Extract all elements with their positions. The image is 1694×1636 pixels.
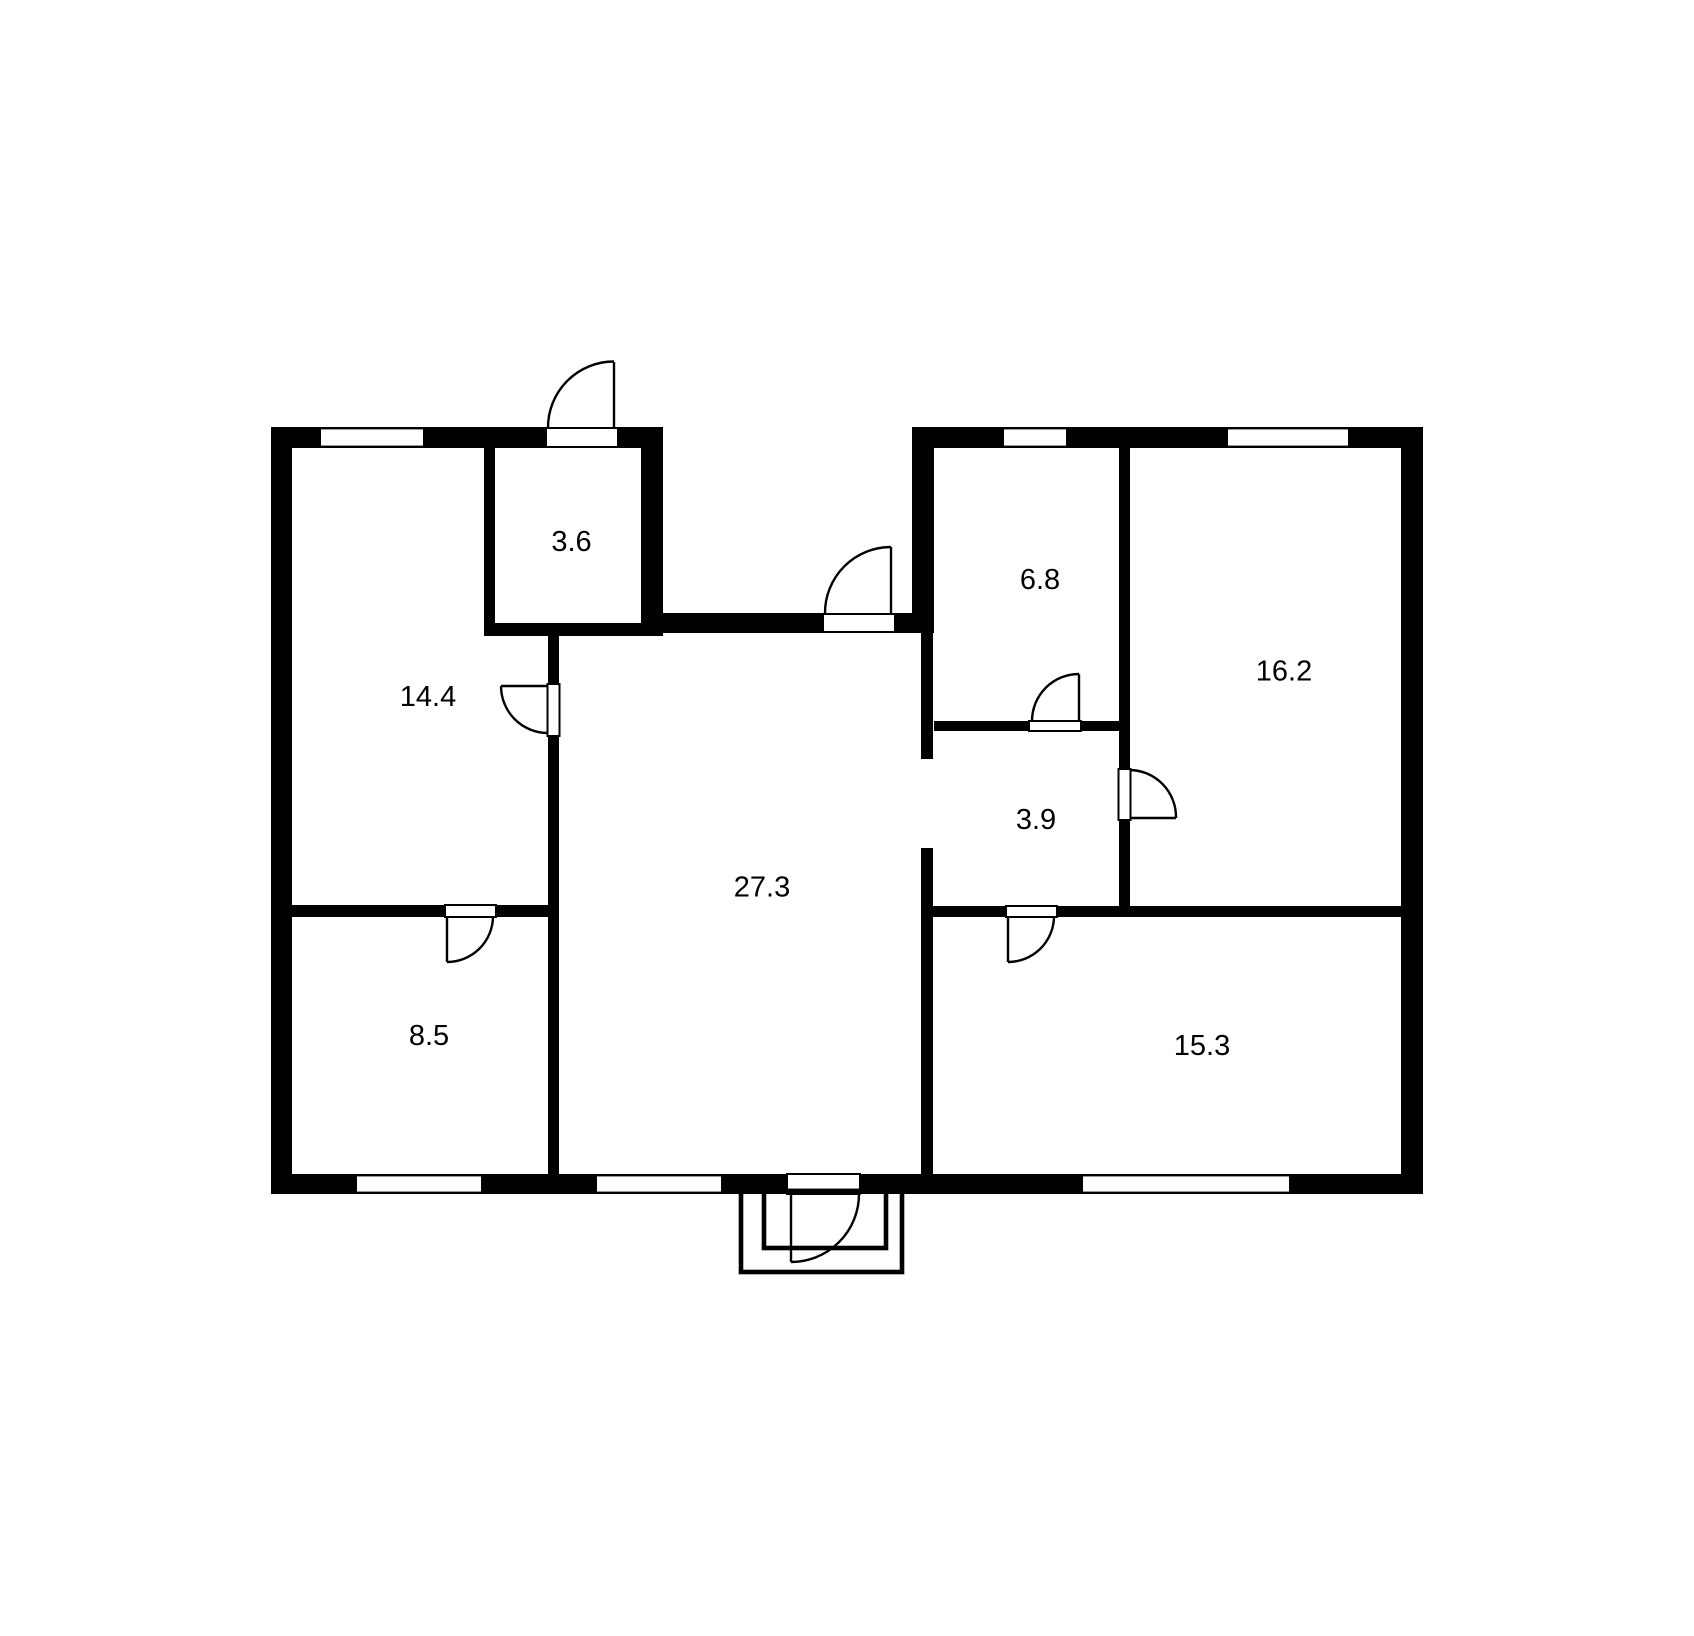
svg-text:3.9: 3.9: [1016, 804, 1056, 836]
svg-text:6.8: 6.8: [1020, 564, 1060, 596]
svg-text:15.3: 15.3: [1174, 1030, 1230, 1062]
svg-text:27.3: 27.3: [734, 872, 790, 904]
svg-text:3.6: 3.6: [551, 526, 591, 558]
svg-text:14.4: 14.4: [400, 681, 456, 713]
svg-text:8.5: 8.5: [409, 1020, 449, 1052]
svg-text:16.2: 16.2: [1256, 656, 1312, 688]
